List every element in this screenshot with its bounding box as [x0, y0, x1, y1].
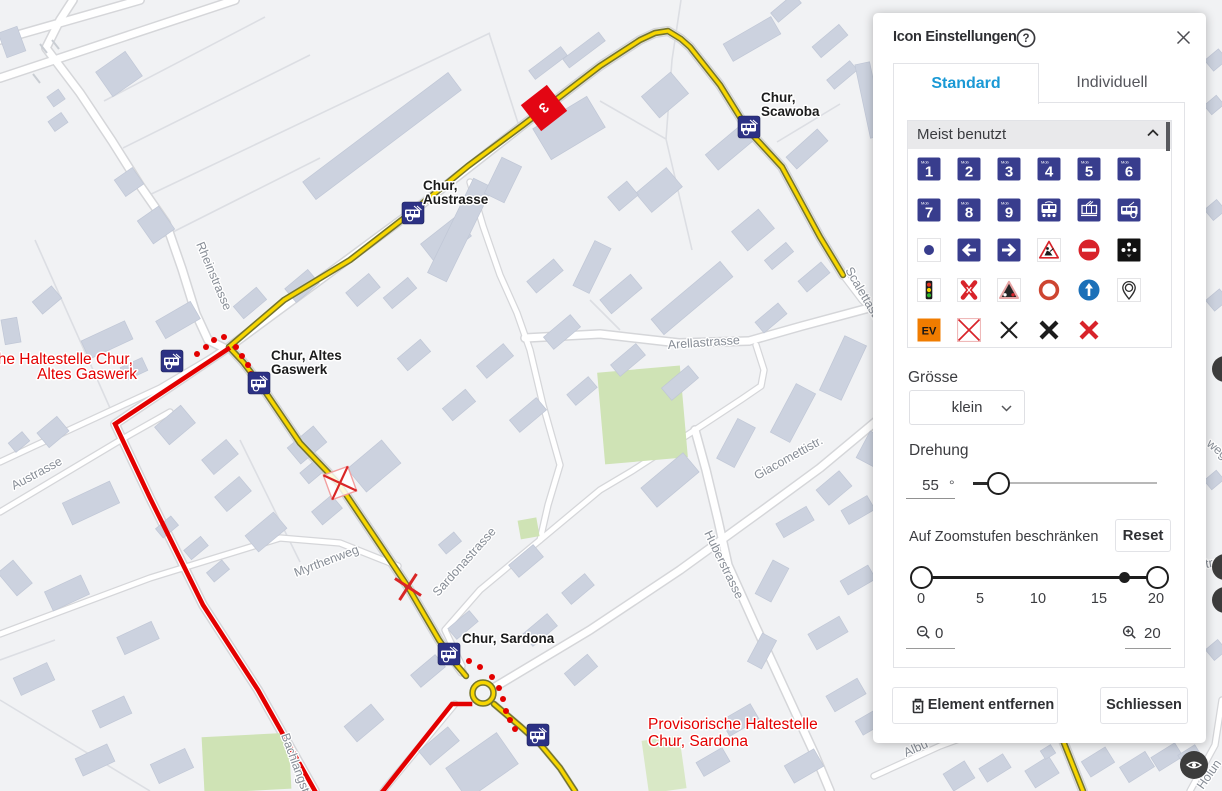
svg-text:2: 2 — [965, 164, 973, 181]
svg-text:Scawoba: Scawoba — [761, 104, 820, 119]
svg-text:Gaswerk: Gaswerk — [271, 362, 328, 377]
svg-text:8: 8 — [965, 204, 973, 221]
svg-text:EV: EV — [922, 326, 937, 338]
svg-text:Chur,: Chur, — [423, 178, 458, 193]
svg-text:Provisorische Haltestelle: Provisorische Haltestelle — [648, 716, 818, 733]
svg-text:Chur, Altes: Chur, Altes — [271, 348, 342, 363]
svg-text:Chur, Sardona: Chur, Sardona — [648, 733, 748, 750]
svg-text:4: 4 — [1045, 164, 1054, 181]
svg-text:7: 7 — [925, 204, 933, 221]
svg-text:Chur, Sardona: Chur, Sardona — [462, 631, 555, 646]
svg-text:?: ? — [1022, 33, 1029, 45]
svg-text:1: 1 — [925, 164, 933, 181]
svg-text:5: 5 — [1085, 164, 1093, 181]
svg-text:9: 9 — [1005, 204, 1013, 221]
svg-text:6: 6 — [1125, 164, 1133, 181]
svg-text:Altes Gaswerk: Altes Gaswerk — [37, 366, 137, 383]
svg-text:3: 3 — [1005, 164, 1013, 181]
svg-text:Chur,: Chur, — [761, 90, 796, 105]
svg-text:Austrasse: Austrasse — [423, 192, 489, 207]
